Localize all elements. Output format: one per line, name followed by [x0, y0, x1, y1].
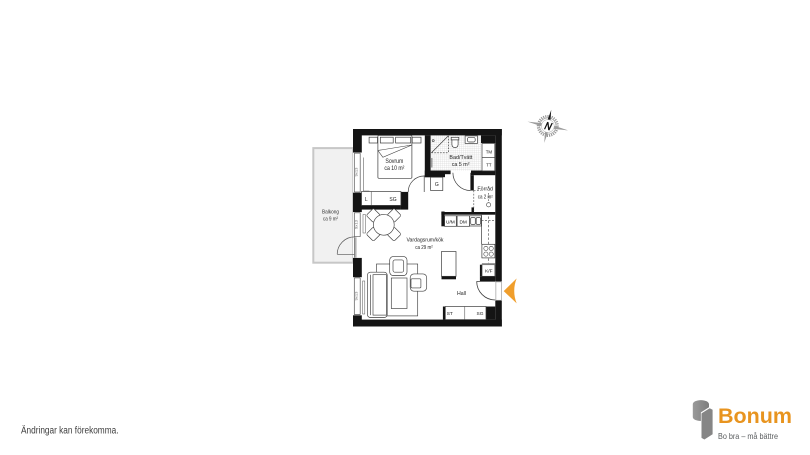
svg-text:Bo bra – må bättre: Bo bra – må bättre: [718, 431, 778, 441]
svg-text:9x13: 9x13: [354, 291, 358, 300]
svg-text:Sovrum: Sovrum: [385, 159, 403, 165]
svg-text:L: L: [365, 197, 368, 203]
svg-text:ca 9 m²: ca 9 m²: [323, 217, 338, 223]
svg-text:K/F: K/F: [485, 269, 493, 274]
svg-text:Förråd: Förråd: [477, 185, 493, 192]
svg-text:ca 29 m²: ca 29 m²: [415, 245, 433, 251]
svg-text:SG: SG: [389, 197, 396, 203]
svg-text:Ändringar kan förekomma.: Ändringar kan förekomma.: [21, 425, 119, 437]
svg-text:Balkong: Balkong: [322, 210, 339, 216]
svg-text:ST: ST: [447, 311, 453, 317]
svg-text:DM: DM: [460, 219, 467, 224]
svg-text:TM: TM: [486, 149, 493, 154]
svg-text:9x13: 9x13: [354, 167, 358, 176]
svg-text:SG: SG: [477, 311, 484, 317]
svg-text:ca 2 m²: ca 2 m²: [478, 194, 493, 200]
svg-text:U/M: U/M: [446, 219, 455, 224]
svg-text:Vardagsrum/kök: Vardagsrum/kök: [407, 238, 444, 244]
svg-text:TT: TT: [486, 163, 491, 168]
svg-text:ca 5 m²: ca 5 m²: [452, 162, 470, 168]
svg-text:9x13: 9x13: [354, 220, 358, 229]
svg-text:Bonum: Bonum: [718, 404, 792, 428]
svg-text:Bad/Tvätt: Bad/Tvätt: [449, 155, 472, 161]
svg-text:G: G: [435, 182, 439, 188]
svg-text:Hall: Hall: [457, 291, 466, 297]
svg-text:ca 10 m²: ca 10 m²: [384, 166, 404, 172]
